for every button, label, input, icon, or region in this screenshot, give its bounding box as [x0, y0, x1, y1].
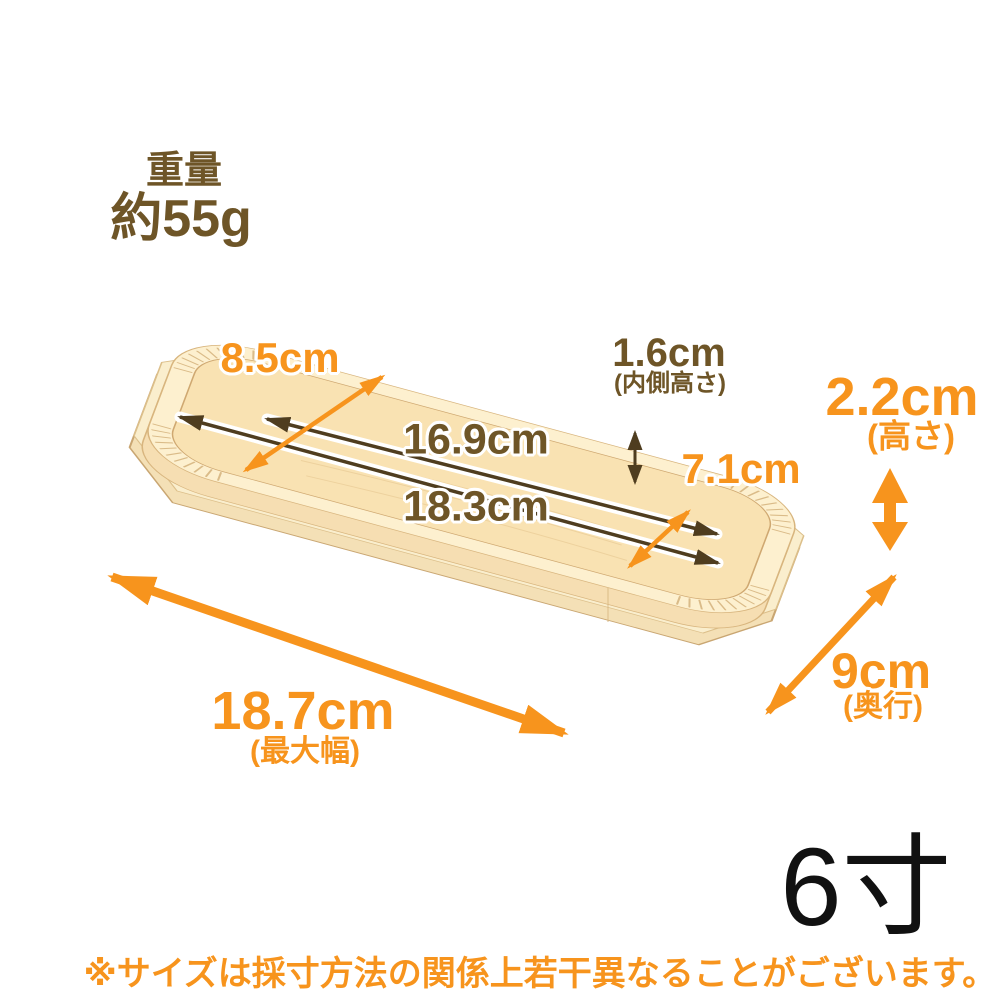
product-dimension-figure: 重量 約55g 8.5cm 16.9cm 18.3cm 1.6cm (内側高さ)… [0, 0, 1000, 1000]
weight-label: 重量 [146, 152, 222, 190]
dim-outer-length-value: 18.3cm [403, 486, 549, 529]
dim-height-note: (高さ) [867, 420, 955, 453]
dim-inner-length-value: 16.9cm [403, 419, 549, 462]
dim-max-width-value: 18.7cm [211, 684, 394, 738]
dim-depth-value: 9cm [831, 646, 931, 696]
dim-top-width-value: 8.5cm [220, 337, 339, 379]
dim-height-value: 2.2cm [825, 370, 978, 424]
dim-max-width-note: (最大幅) [250, 737, 360, 767]
height-arrow [872, 468, 908, 551]
dim-inner-height-note: (内側高さ) [614, 372, 726, 396]
weight-value: 約55g [110, 193, 252, 245]
size-label: 6寸 [780, 833, 951, 943]
dim-inner-height-value: 1.6cm [612, 333, 725, 373]
disclaimer-note: ※サイズは採寸方法の関係上若干異なることがございます。 [84, 957, 997, 991]
dim-inner-width-value: 7.1cm [681, 448, 800, 490]
dim-depth-note: (奥行) [843, 692, 923, 722]
